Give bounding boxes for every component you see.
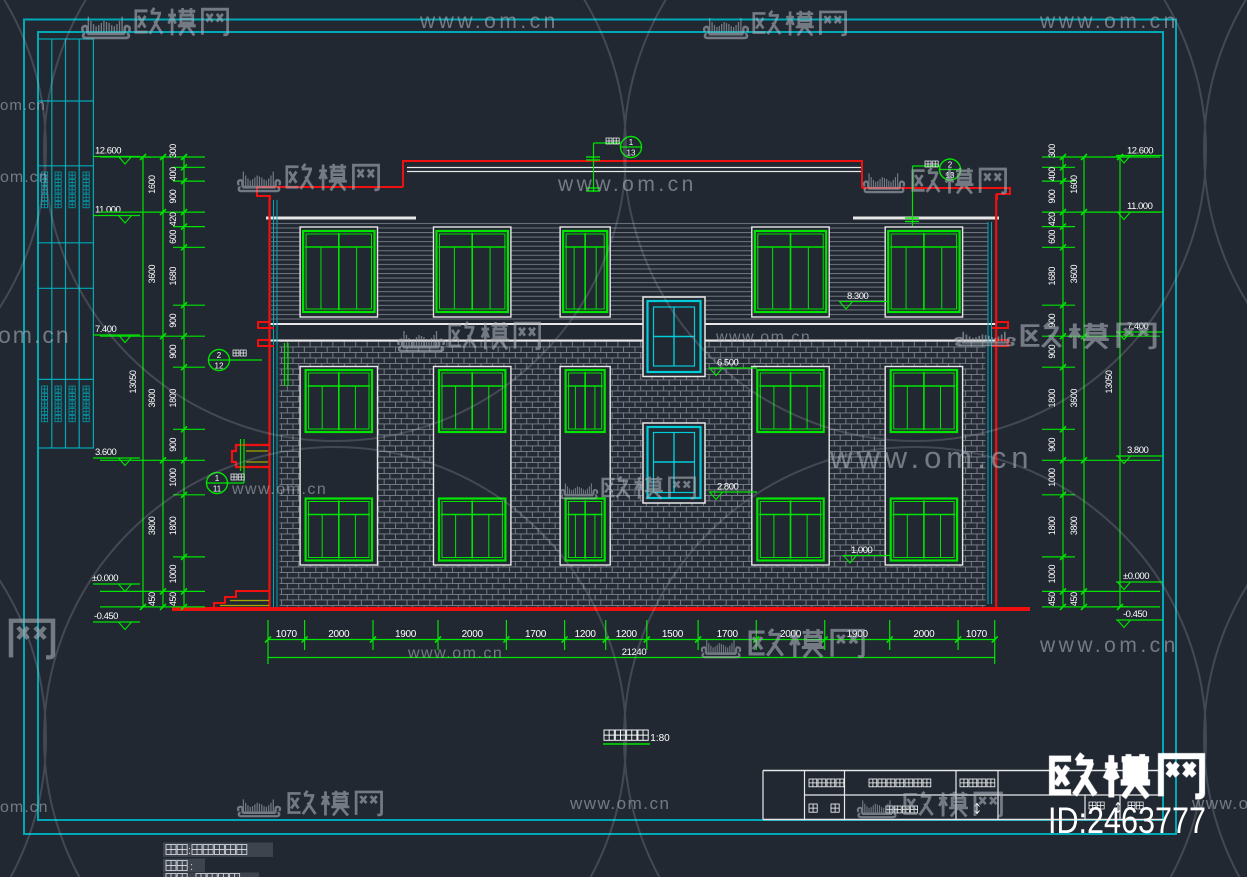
svg-text:om.cn: om.cn [0,322,71,348]
svg-text:www.om.cn: www.om.cn [419,10,559,33]
svg-text:om.cn: om.cn [0,169,49,186]
svg-text:www.om.cn: www.om.cn [407,645,503,662]
svg-text:1500: 1500 [662,629,684,640]
svg-text:11.000: 11.000 [1127,201,1153,212]
svg-text:450: 450 [1047,592,1057,606]
svg-text:300: 300 [1047,144,1057,158]
svg-text:1700: 1700 [717,629,739,640]
svg-text:3600: 3600 [1069,265,1079,284]
svg-text:-0.450: -0.450 [1123,609,1147,620]
svg-text:8.300: 8.300 [847,291,868,302]
svg-text:2.800: 2.800 [717,482,738,493]
svg-text:±0.000: ±0.000 [92,573,118,584]
svg-text:1200: 1200 [616,629,638,640]
svg-text:3.800: 3.800 [1127,445,1148,456]
svg-text:600: 600 [1047,230,1057,244]
svg-text:3800: 3800 [147,516,157,535]
svg-text:900: 900 [1047,344,1057,358]
svg-text:1600: 1600 [147,175,157,194]
svg-text:www.om.cn: www.om.cn [569,794,670,813]
svg-text:2000: 2000 [913,629,935,640]
svg-text:2000: 2000 [780,629,802,640]
svg-text:12.600: 12.600 [95,146,121,157]
svg-text:1: 1 [215,474,220,483]
svg-text:2000: 2000 [328,629,350,640]
svg-text:11.000: 11.000 [95,205,121,216]
svg-text:1000: 1000 [168,468,178,487]
svg-text:13050: 13050 [128,370,138,393]
svg-text:www.om.cn: www.om.cn [1039,634,1179,657]
svg-text:2000: 2000 [462,629,484,640]
svg-text:ID:2463777: ID:2463777 [1048,800,1206,841]
svg-text:2: 2 [217,351,222,360]
svg-text:www.om.cn: www.om.cn [829,440,1033,475]
svg-text:900: 900 [1047,438,1057,452]
svg-text:1070: 1070 [276,629,298,640]
svg-text:600: 600 [168,230,178,244]
svg-text:1600: 1600 [1069,175,1079,194]
svg-text:2: 2 [948,161,953,170]
svg-text:12: 12 [215,362,224,371]
svg-text:3600: 3600 [147,389,157,408]
svg-text:3.600: 3.600 [95,447,116,458]
svg-text:1.000: 1.000 [851,545,872,556]
svg-text:1800: 1800 [168,516,178,535]
svg-text:om.cn: om.cn [0,97,46,114]
svg-text:450: 450 [1069,592,1079,606]
svg-text::: : [190,861,193,873]
svg-text:13: 13 [627,149,636,158]
svg-text:www.om.cn: www.om.cn [1039,10,1179,33]
svg-text:1070: 1070 [966,629,988,640]
svg-text:3800: 3800 [1069,516,1079,535]
svg-text:1900: 1900 [395,629,417,640]
svg-text:900: 900 [168,189,178,203]
svg-text:12.600: 12.600 [1127,146,1153,157]
svg-text:1: 1 [629,138,634,147]
svg-text:400: 400 [168,167,178,181]
svg-text:420: 420 [168,212,178,226]
svg-text:www.om.cn: www.om.cn [557,173,697,196]
svg-text::: : [188,845,191,857]
svg-text:900: 900 [168,313,178,327]
svg-text:13050: 13050 [1104,370,1114,393]
svg-text:450: 450 [168,592,178,606]
svg-text:1680: 1680 [1047,267,1057,286]
svg-text:1:80: 1:80 [650,733,670,744]
svg-text:900: 900 [1047,189,1057,203]
svg-text:3600: 3600 [147,265,157,284]
svg-text:21240: 21240 [622,647,647,658]
svg-text:om.cn: om.cn [0,799,49,816]
svg-text:1680: 1680 [168,267,178,286]
svg-text:1700: 1700 [525,629,547,640]
svg-text:±0.000: ±0.000 [1123,571,1149,582]
svg-text:900: 900 [168,438,178,452]
svg-text:420: 420 [1047,212,1057,226]
svg-text:1200: 1200 [575,629,597,640]
svg-text:www.om.cn: www.om.cn [715,329,811,346]
svg-text:400: 400 [1047,167,1057,181]
svg-text:300: 300 [168,144,178,158]
svg-text:1000: 1000 [1047,565,1057,584]
svg-text:900: 900 [168,344,178,358]
svg-text:1800: 1800 [1047,516,1057,535]
svg-text:11: 11 [213,485,222,494]
svg-text:450: 450 [147,592,157,606]
svg-text:www.om.cn: www.om.cn [231,481,327,498]
svg-text:-0.450: -0.450 [94,611,118,622]
svg-text:1000: 1000 [168,565,178,584]
